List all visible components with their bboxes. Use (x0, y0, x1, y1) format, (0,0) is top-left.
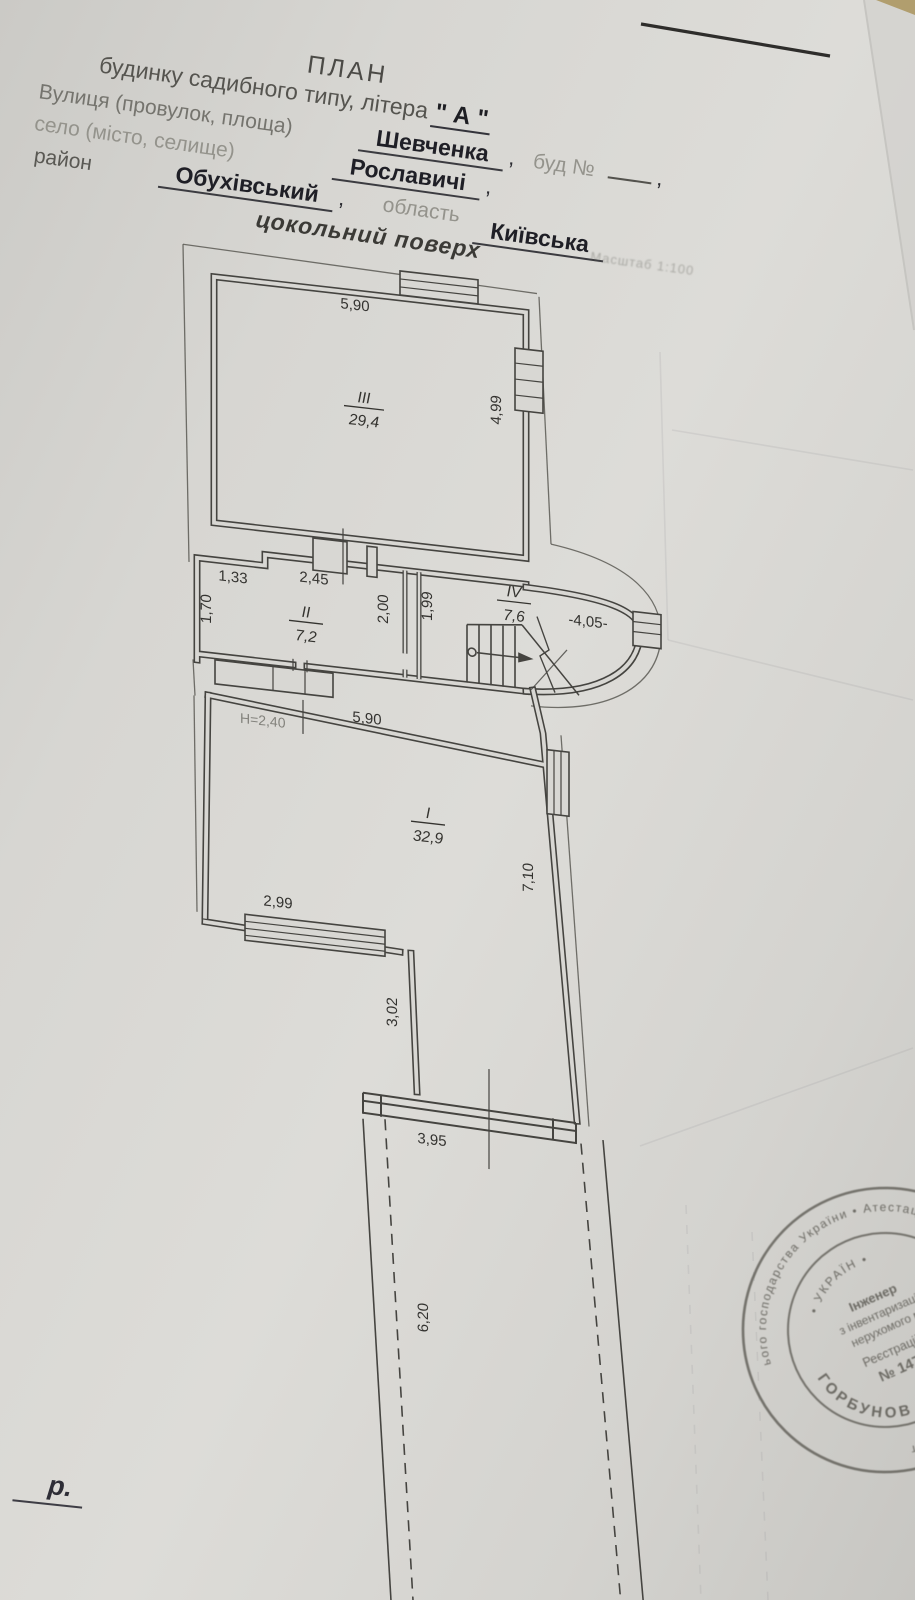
dim-1-33: 1,33 (218, 567, 247, 587)
floor-plan: 5,90 4,99 1,33 2,45 1,70 2,00 1,99 -4,05… (183, 244, 661, 1600)
ramp-lines (363, 1113, 649, 1600)
comma-mark: , (337, 185, 347, 211)
door-opening-2 (367, 546, 377, 577)
dim-2-45: 2,45 (299, 569, 328, 589)
svg-text:7,6: 7,6 (503, 607, 525, 626)
interior-partitions (405, 571, 419, 680)
dim-top-width: 5,90 (340, 295, 369, 315)
comma-mark: , (655, 165, 665, 191)
dim-1-99: 1,99 (419, 591, 436, 622)
svg-text:IV: IV (507, 583, 523, 602)
form-oblast-value: Київська (473, 215, 607, 262)
year-mark-text: р. (47, 1470, 74, 1502)
dim-6-20: 6,20 (415, 1302, 432, 1333)
top-rule-line (641, 24, 830, 56)
form-oblast-label: область (381, 193, 461, 227)
room-label-iii: III 29,4 (344, 388, 384, 433)
exterior-walls (197, 275, 640, 1128)
dim-7-10: 7,10 (520, 862, 537, 893)
window-hatch-rounded-end (633, 611, 661, 648)
stairs-direction-arrow (519, 654, 531, 663)
dim-1-70: 1,70 (198, 593, 215, 624)
form-district-label: район (33, 144, 94, 175)
svg-text:III: III (358, 389, 372, 407)
svg-text:7,2: 7,2 (295, 627, 317, 646)
window-hatch-room3-right (515, 348, 543, 413)
bottom-thick-wall (363, 1093, 576, 1144)
dim-2-00: 2,00 (375, 594, 392, 625)
official-stamp: ього господарства України • Атестаційна … (698, 1143, 915, 1518)
door-opening-1 (313, 538, 347, 574)
year-mark: р. (12, 1466, 85, 1508)
room-label-ii: II 7,2 (289, 602, 323, 647)
svg-text:I: I (426, 805, 431, 823)
dim-3-95: 3,95 (417, 1130, 446, 1150)
dim-mid-width: 5,90 (352, 709, 381, 729)
comma-mark: , (484, 173, 494, 199)
svg-text:II: II (302, 604, 311, 622)
dimension-ticks (303, 524, 489, 1169)
building-letter-value: " А " (430, 98, 493, 135)
dim-level-mark: -4,05- (568, 611, 607, 632)
comma-mark: , (507, 144, 517, 170)
svg-text:29,4: 29,4 (348, 411, 380, 432)
stamp-ring-country-text: • УКРАЇН • (794, 1250, 882, 1319)
room-label-i: I 32,9 (411, 803, 445, 848)
svg-text:32,9: 32,9 (413, 827, 444, 847)
form-bud-blank (608, 158, 654, 184)
stairs-start-circle (468, 648, 476, 657)
scanned-floor-plan-page: { "header": { "title": "ПЛАН", "subtitle… (0, 0, 915, 1600)
dim-right-height: 4,99 (488, 394, 505, 425)
dim-2-99: 2,99 (263, 892, 292, 912)
svg-text:• УКРАЇН •: • УКРАЇН • (794, 1250, 882, 1319)
form-bud-label: буд № (532, 150, 597, 181)
window-hatch-room1-right (547, 750, 569, 817)
window-hatch-room1-bottom (245, 914, 385, 956)
dim-3-02: 3,02 (384, 997, 401, 1028)
